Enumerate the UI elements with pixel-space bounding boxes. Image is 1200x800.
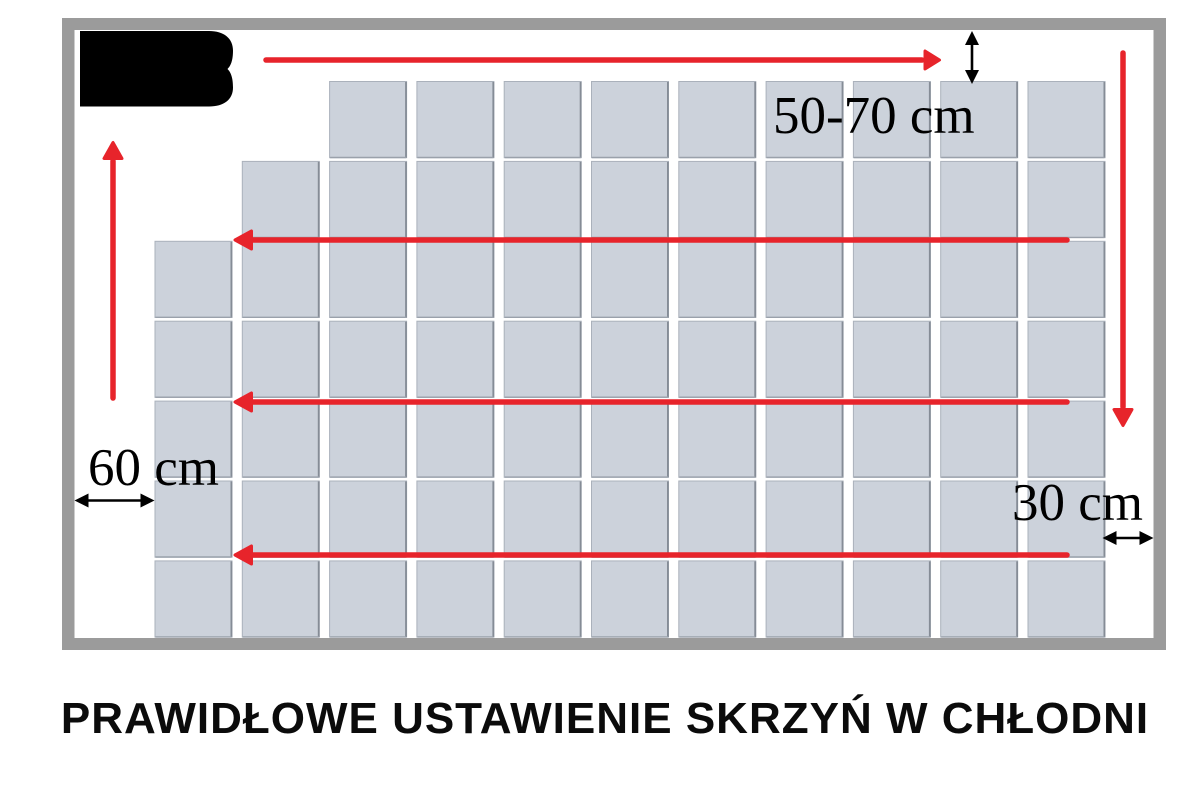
svg-text:30 cm: 30 cm — [1012, 474, 1143, 532]
svg-text:PRAWIDŁOWE USTAWIENIE SKRZYŃ W: PRAWIDŁOWE USTAWIENIE SKRZYŃ W CHŁODNI — [61, 693, 1149, 743]
svg-text:60 cm: 60 cm — [88, 439, 219, 497]
svg-text:50-70 cm: 50-70 cm — [773, 87, 975, 145]
